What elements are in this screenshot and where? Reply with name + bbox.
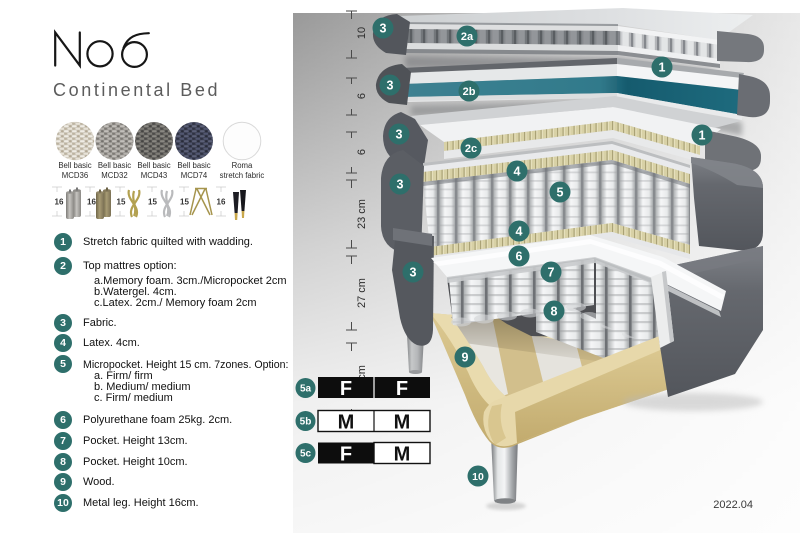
svg-text:MCD36: MCD36 [62, 171, 88, 180]
svg-text:M: M [394, 444, 411, 466]
svg-text:MCD32: MCD32 [101, 171, 127, 180]
svg-text:2c: 2c [465, 143, 477, 155]
svg-text:1: 1 [699, 129, 706, 143]
svg-text:15: 15 [180, 198, 189, 207]
svg-text:5b: 5b [300, 417, 312, 428]
svg-text:F: F [396, 378, 408, 400]
svg-text:16: 16 [55, 198, 64, 207]
svg-text:1: 1 [659, 61, 666, 75]
svg-text:3: 3 [380, 22, 387, 36]
svg-text:MCD74: MCD74 [181, 171, 208, 180]
svg-text:Roma: Roma [232, 161, 253, 170]
svg-text:M: M [394, 412, 411, 434]
svg-text:16: 16 [87, 198, 96, 207]
svg-text:27 cm: 27 cm [356, 278, 368, 308]
svg-text:Bell basic: Bell basic [137, 161, 170, 170]
svg-text:Bell basic: Bell basic [58, 161, 91, 170]
svg-text:6: 6 [356, 93, 368, 99]
svg-text:7: 7 [548, 266, 555, 280]
svg-text:3: 3 [410, 266, 417, 280]
svg-text:stretch fabric: stretch fabric [220, 171, 265, 180]
svg-text:2a: 2a [461, 31, 474, 43]
svg-text:6: 6 [356, 149, 368, 155]
svg-text:9: 9 [462, 351, 469, 365]
svg-text:5a: 5a [300, 384, 312, 395]
svg-text:8: 8 [551, 305, 558, 319]
svg-text:5: 5 [557, 186, 564, 200]
svg-text:16: 16 [217, 198, 226, 207]
svg-text:15: 15 [117, 198, 126, 207]
svg-text:15: 15 [148, 198, 157, 207]
svg-text:MCD43: MCD43 [141, 171, 167, 180]
svg-text:3: 3 [397, 178, 404, 192]
svg-text:10: 10 [472, 471, 484, 483]
svg-text:23 cm: 23 cm [356, 199, 368, 229]
svg-text:3: 3 [387, 79, 394, 93]
svg-text:F: F [340, 444, 352, 466]
svg-text:4: 4 [514, 165, 521, 179]
svg-text:4: 4 [516, 225, 523, 239]
svg-text:3: 3 [396, 128, 403, 142]
svg-text:M: M [338, 412, 355, 434]
svg-text:Bell basic: Bell basic [98, 161, 131, 170]
svg-text:5c: 5c [300, 449, 312, 460]
svg-text:2b: 2b [463, 86, 476, 98]
svg-text:F: F [340, 378, 352, 400]
svg-text:6: 6 [516, 250, 523, 264]
svg-text:Bell basic: Bell basic [177, 161, 210, 170]
svg-text:10: 10 [356, 27, 368, 39]
svg-text:2022.04: 2022.04 [713, 499, 753, 511]
